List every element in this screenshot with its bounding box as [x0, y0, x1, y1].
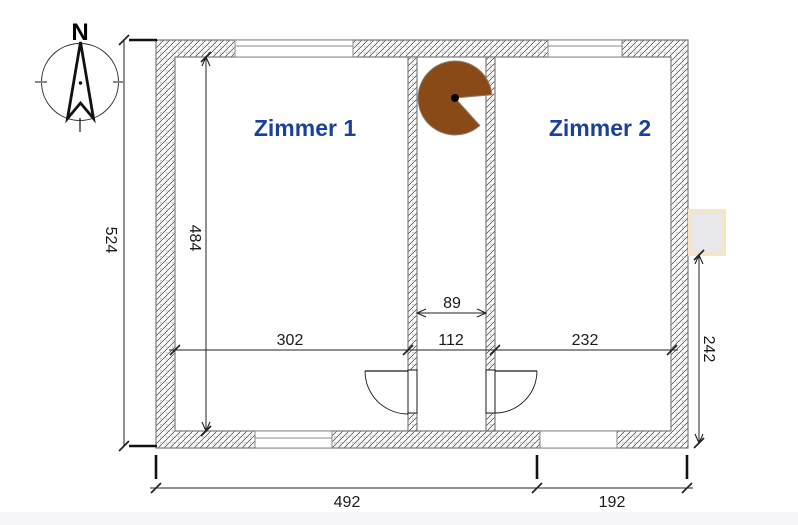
dimension-label-inner-height: 484 — [186, 225, 203, 252]
room2-label: Zimmer 2 — [549, 115, 651, 141]
right-wall-marker — [690, 211, 724, 254]
window-top-room2 — [548, 40, 622, 57]
dimension-label-room1-width: 302 — [277, 332, 304, 349]
dimension-bottom-chain — [150, 455, 693, 493]
dimension-outer-height — [119, 35, 157, 451]
dimension-label-bottom-right: 192 — [599, 494, 626, 511]
sector-center-dot — [451, 94, 459, 102]
dimension-label-corridor-inner: 89 — [443, 295, 461, 312]
dimension-label-outer-height: 524 — [102, 227, 119, 254]
dimension-horizontal-chain — [169, 345, 678, 355]
dimension-label-corridor-outer: 112 — [438, 332, 464, 349]
dimension-label-bottom-main: 492 — [334, 494, 361, 511]
door-room2 — [486, 370, 537, 413]
sector-marker-icon — [418, 61, 492, 135]
floor-plan-svg: N Zimmer 1 Zimmer 2 524 484 302 89 112 2… — [0, 0, 798, 525]
door-room1 — [365, 370, 417, 414]
north-compass-icon — [35, 42, 125, 132]
dimension-label-room2-width: 232 — [572, 332, 599, 349]
floor-plan: N Zimmer 1 Zimmer 2 524 484 302 89 112 2… — [0, 0, 798, 525]
compass-center-dot — [79, 81, 82, 84]
opening-bottom-room2 — [540, 431, 617, 448]
page-bottom-strip — [0, 512, 798, 525]
north-label: N — [71, 19, 88, 46]
window-bottom-room1 — [255, 431, 332, 448]
room1-label: Zimmer 1 — [254, 115, 356, 141]
dimension-label-right-height: 242 — [700, 336, 717, 363]
compass-needle-icon — [68, 42, 94, 119]
window-top-room1 — [235, 40, 353, 57]
